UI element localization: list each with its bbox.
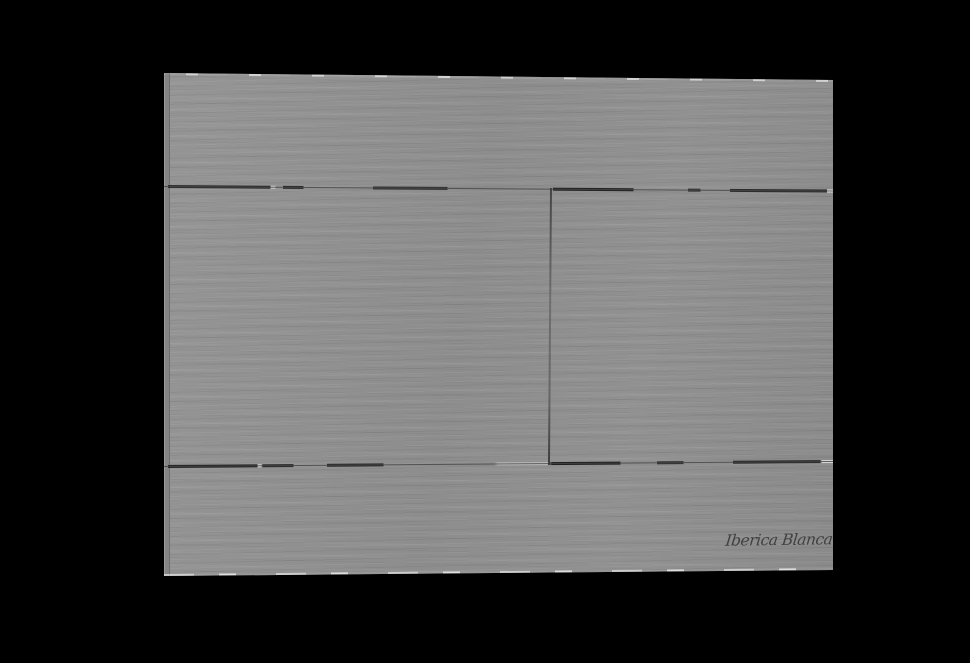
left-flush-button	[164, 187, 551, 465]
brand-signature: Iberica Blanca	[722, 523, 835, 557]
flush-plate: Iberica Blanca	[164, 73, 833, 576]
black-backdrop: Iberica Blanca	[0, 0, 970, 663]
plate-bottom-panel	[164, 466, 833, 576]
plate-top-panel	[164, 73, 833, 187]
plate-left-edge-bevel	[164, 73, 171, 576]
right-flush-button	[552, 187, 833, 465]
